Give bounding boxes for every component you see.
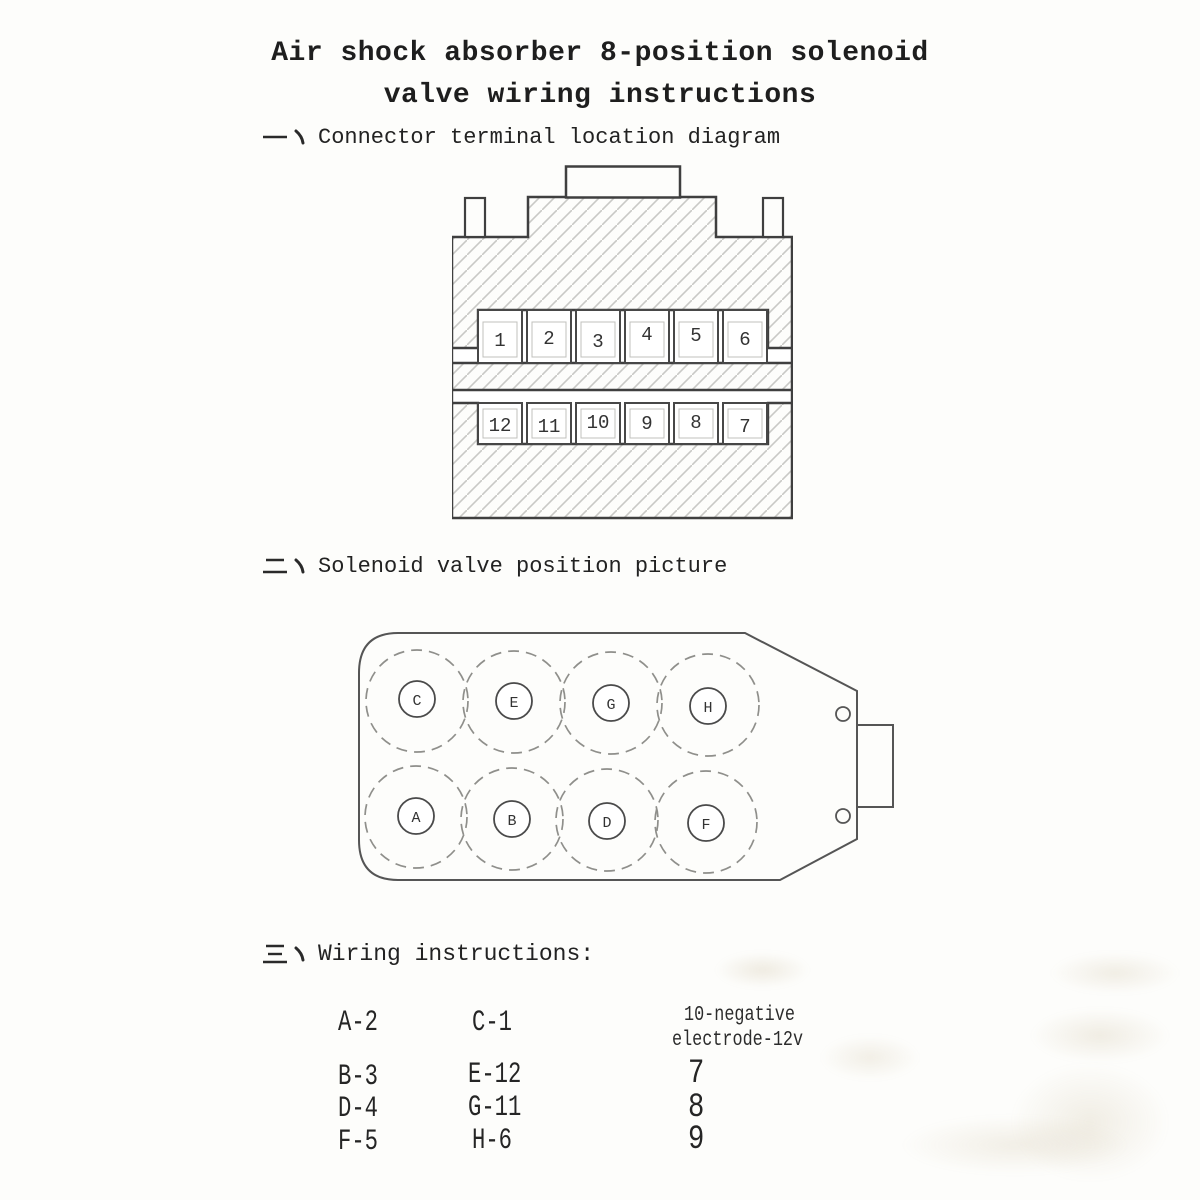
numeral-one-icon	[260, 124, 310, 150]
wiring-entry-9: 9	[688, 1122, 704, 1158]
svg-text:A: A	[411, 810, 420, 827]
svg-text:G: G	[606, 697, 615, 714]
connector-left-ear	[465, 198, 485, 237]
page-title-line1: Air shock absorber 8-position solenoid	[0, 33, 1200, 75]
svg-text:8: 8	[690, 412, 701, 434]
bleed-through-smudge	[820, 1035, 920, 1080]
terminal-box-4: 4	[625, 310, 669, 363]
valve-port-D: D	[589, 803, 625, 839]
svg-text:D: D	[602, 815, 611, 832]
valve-port-H: H	[690, 688, 726, 724]
bleed-through-smudge	[1010, 1062, 1170, 1182]
svg-text:C: C	[412, 693, 421, 710]
terminal-box-2: 2	[527, 310, 571, 363]
connector-right-ear	[763, 198, 783, 237]
wiring-entry-c1: C-1	[472, 1007, 512, 1039]
wiring-entry-f5: F-5	[338, 1126, 378, 1158]
wiring-note-line2: electrode-12v	[672, 1029, 803, 1053]
terminal-box-7: 7	[723, 403, 767, 444]
wiring-entry-h6: H-6	[472, 1125, 512, 1157]
connector-terminal-diagram: 1 2 3 4 5 6 12	[452, 165, 793, 523]
bleed-through-smudge	[900, 1115, 1130, 1175]
svg-text:9: 9	[641, 413, 652, 435]
section-3-label: Wiring instructions:	[318, 941, 594, 967]
svg-text:3: 3	[592, 331, 603, 353]
solenoid-valve-picture: C E G H A B D F	[350, 623, 902, 895]
wiring-entry-a2: A-2	[338, 1007, 378, 1039]
valve-port-F: F	[688, 805, 724, 841]
wiring-note-line1: 10-negative	[684, 1004, 795, 1028]
valve-port-B: B	[494, 801, 530, 837]
valve-body-outline	[359, 633, 857, 880]
svg-text:1: 1	[494, 330, 505, 352]
wiring-entry-b3: B-3	[338, 1061, 378, 1093]
valve-port-C: C	[399, 681, 435, 717]
wiring-entry-e12: E-12	[468, 1059, 521, 1091]
svg-text:4: 4	[641, 324, 652, 346]
valve-port-A: A	[398, 798, 434, 834]
terminal-box-12: 12	[478, 403, 522, 444]
scanned-instruction-page: Air shock absorber 8-position solenoid v…	[0, 0, 1200, 1200]
page-title-line2: valve wiring instructions	[0, 75, 1200, 117]
bleed-through-smudge	[715, 952, 810, 988]
svg-text:E: E	[509, 695, 518, 712]
terminal-box-6: 6	[723, 310, 767, 363]
wiring-entry-7: 7	[688, 1056, 704, 1092]
wiring-entry-g11: G-11	[468, 1092, 521, 1124]
section-1-label: Connector terminal location diagram	[318, 125, 780, 150]
valve-connector-tab	[857, 725, 893, 807]
terminal-box-5: 5	[674, 310, 718, 363]
terminal-box-9: 9	[625, 403, 669, 444]
numeral-two-icon	[260, 553, 310, 579]
svg-text:10: 10	[587, 412, 610, 434]
wiring-entry-d4: D-4	[338, 1093, 378, 1125]
terminal-box-10: 10	[576, 403, 620, 444]
section-2-label: Solenoid valve position picture	[318, 554, 727, 579]
svg-text:5: 5	[690, 325, 701, 347]
page-title: Air shock absorber 8-position solenoid v…	[0, 33, 1200, 117]
valve-port-G: G	[593, 685, 629, 721]
svg-text:11: 11	[538, 416, 561, 438]
bleed-through-smudge	[1030, 1008, 1170, 1063]
svg-text:12: 12	[489, 415, 512, 437]
terminal-box-3: 3	[576, 310, 620, 363]
svg-text:B: B	[507, 813, 516, 830]
svg-text:2: 2	[543, 328, 554, 350]
terminal-box-1: 1	[478, 310, 522, 363]
terminal-box-11: 11	[527, 403, 571, 444]
svg-text:F: F	[701, 817, 710, 834]
bleed-through-smudge	[1050, 952, 1180, 994]
section-2-heading: Solenoid valve position picture	[260, 553, 727, 579]
section-3-heading: Wiring instructions:	[260, 941, 594, 967]
section-1-heading: Connector terminal location diagram	[260, 124, 780, 150]
connector-top-tab	[566, 167, 680, 198]
svg-text:7: 7	[739, 416, 750, 438]
numeral-three-icon	[260, 941, 310, 967]
svg-text:6: 6	[739, 329, 750, 351]
svg-text:H: H	[703, 700, 712, 717]
terminal-box-8: 8	[674, 403, 718, 444]
valve-port-E: E	[496, 683, 532, 719]
